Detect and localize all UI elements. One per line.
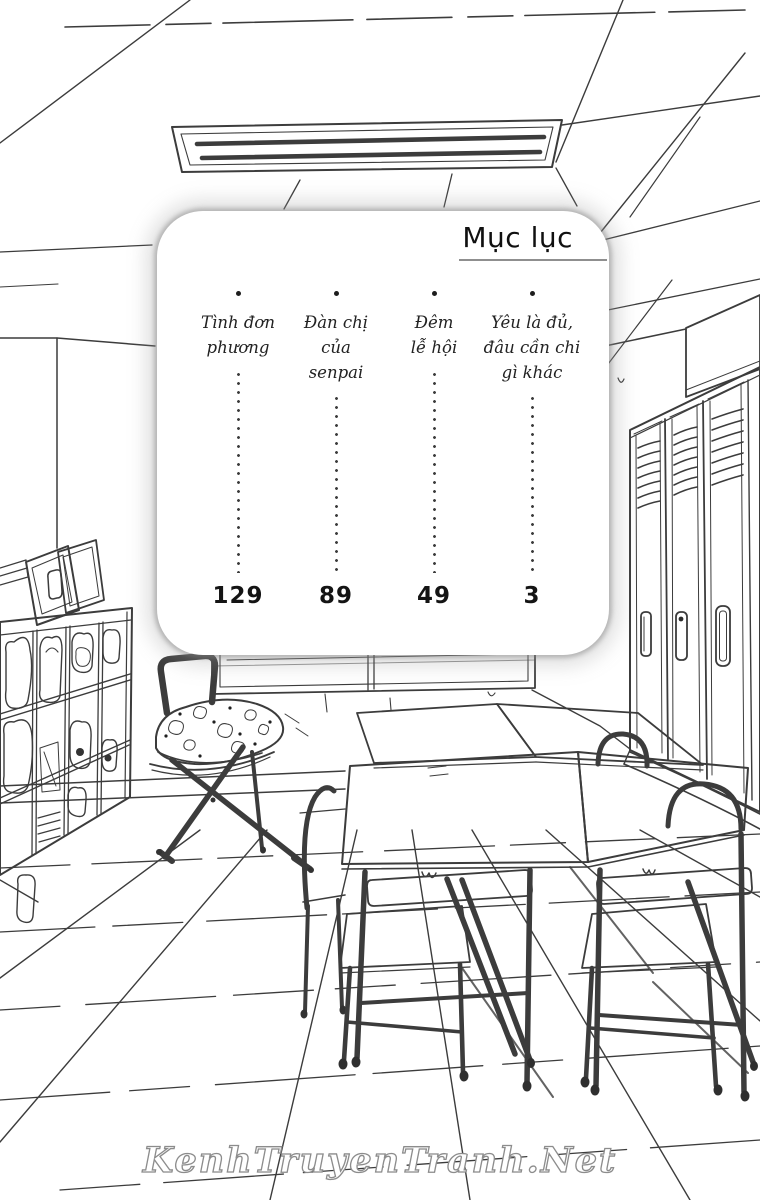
- chapter-bullet-icon: [334, 291, 339, 296]
- chapter-bullet-icon: [236, 291, 241, 296]
- chapter-page-number: 89: [319, 583, 353, 609]
- floral-cushion: [156, 700, 283, 764]
- site-watermark: KenhTruyenTranh.Net: [0, 1140, 760, 1181]
- ceiling-light-fixture: [172, 120, 562, 172]
- toc-columns: Tình đơn phương 129 Đàn chị của senpai 8…: [189, 291, 581, 609]
- toc-entry-2: Đàn chị của senpai 89: [287, 291, 385, 609]
- dotted-leader: [237, 373, 240, 574]
- chapter-title: Đàn chị của senpai: [304, 311, 368, 385]
- school-desks: [342, 752, 758, 1102]
- chapter-title: Tình đơn phương: [201, 311, 275, 361]
- dotted-leader: [531, 397, 534, 573]
- chapter-page-number: 49: [417, 583, 451, 609]
- toc-entry-1: Tình đơn phương 129: [189, 291, 287, 609]
- chapter-bullet-icon: [530, 291, 535, 296]
- folding-chair: [150, 656, 314, 873]
- toc-title-underline: [459, 259, 607, 261]
- dotted-leader: [335, 397, 338, 573]
- chapter-page-number: 3: [523, 583, 540, 609]
- toc-card: Mục lục Tình đơn phương 129 Đàn chị của …: [157, 211, 609, 655]
- chapter-title: Đêm lễ hội: [411, 311, 458, 361]
- chapter-bullet-icon: [432, 291, 437, 296]
- toc-entry-3: Đêm lễ hội 49: [385, 291, 483, 609]
- dotted-leader: [433, 373, 436, 574]
- chapter-page-number: 129: [212, 583, 263, 609]
- toc-title: Mục lục: [462, 223, 573, 254]
- manga-toc-page: Mục lục Tình đơn phương 129 Đàn chị của …: [0, 0, 760, 1200]
- chapter-title: Yêu là đủ, đâu cần chi gì khác: [484, 311, 581, 385]
- toc-entry-4: Yêu là đủ, đâu cần chi gì khác 3: [483, 291, 581, 609]
